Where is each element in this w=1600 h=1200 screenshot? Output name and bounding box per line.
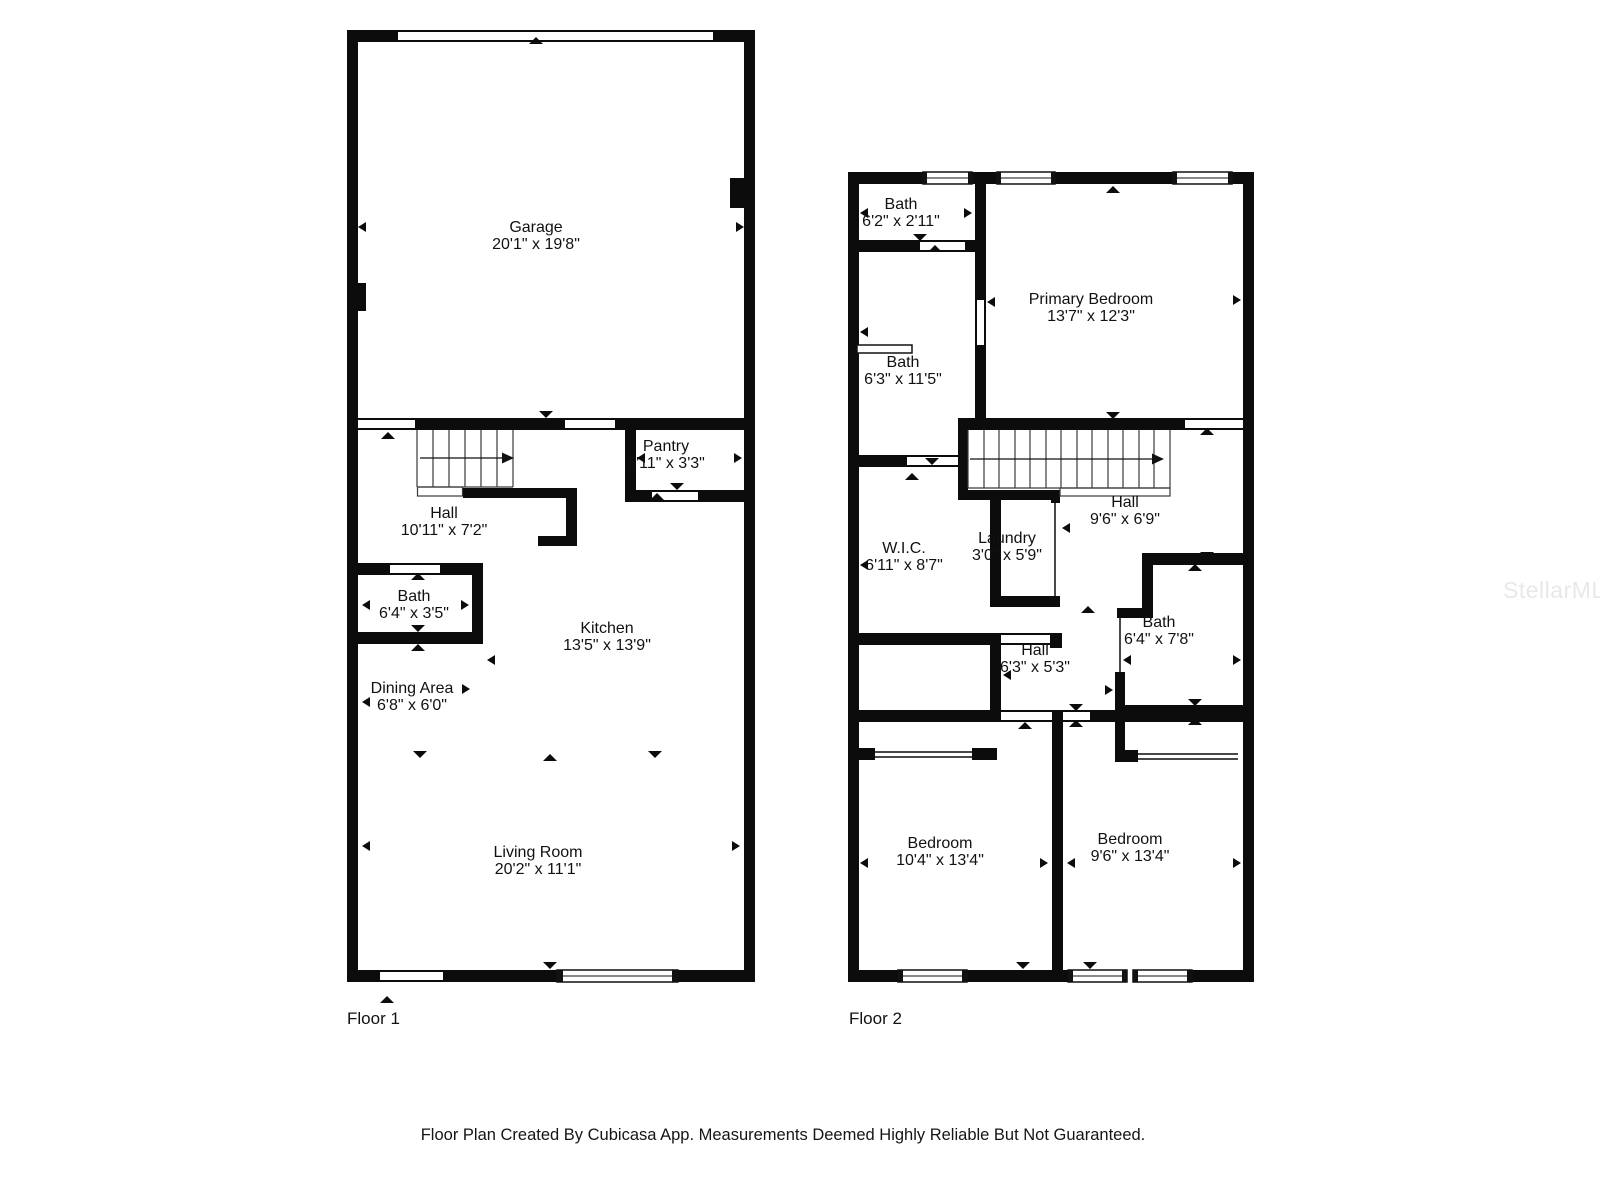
room-dims: 10'11" x 7'2" bbox=[401, 522, 488, 539]
room-label-pantry: Pantry 5'11" x 3'3" bbox=[627, 438, 705, 472]
room-dims: 6'2" x 2'11" bbox=[862, 213, 940, 230]
room-dims: 20'1" x 19'8" bbox=[492, 236, 580, 253]
room-label-dining-area: Dining Area 6'8" x 6'0" bbox=[371, 680, 454, 714]
room-name: Hall bbox=[1090, 494, 1160, 511]
room-label-laundry: Laundry 3'0" x 5'9" bbox=[972, 530, 1042, 564]
room-label-garage: Garage 20'1" x 19'8" bbox=[492, 219, 580, 253]
room-dims: 10'4" x 13'4" bbox=[896, 852, 984, 869]
room-label-bath-top-floor2: Bath 6'2" x 2'11" bbox=[862, 196, 940, 230]
room-dims: 3'0" x 5'9" bbox=[972, 547, 1042, 564]
room-dims: 6'8" x 6'0" bbox=[371, 697, 454, 714]
room-dims: 6'11" x 8'7" bbox=[865, 557, 943, 574]
room-dims: 6'3" x 11'5" bbox=[864, 371, 942, 388]
room-name: Bath bbox=[1124, 614, 1194, 631]
room-name: Garage bbox=[492, 219, 580, 236]
room-dims: 9'6" x 13'4" bbox=[1091, 848, 1170, 865]
floor1-window bbox=[557, 970, 678, 982]
room-label-kitchen: Kitchen 13'5" x 13'9" bbox=[563, 620, 651, 654]
room-dims: 5'11" x 3'3" bbox=[627, 455, 705, 472]
room-label-hall-lower-floor2: Hall 6'3" x 5'3" bbox=[1000, 642, 1070, 676]
footer-disclaimer: Floor Plan Created By Cubicasa App. Meas… bbox=[0, 1126, 1566, 1145]
room-name: Bath bbox=[864, 354, 942, 371]
room-name: Living Room bbox=[494, 844, 583, 861]
room-name: Dining Area bbox=[371, 680, 454, 697]
room-name: Hall bbox=[1000, 642, 1070, 659]
floor-plan-page: Garage 20'1" x 19'8" Pantry 5'11" x 3'3"… bbox=[0, 0, 1600, 1200]
room-dims: 9'6" x 6'9" bbox=[1090, 511, 1160, 528]
room-label-bath-floor1: Bath 6'4" x 3'5" bbox=[379, 588, 449, 622]
room-dims: 20'2" x 11'1" bbox=[494, 861, 583, 878]
stellar-mls-watermark: StellarMLS bbox=[1503, 577, 1600, 604]
room-label-bedroom-right: Bedroom 9'6" x 13'4" bbox=[1091, 831, 1170, 865]
room-name: Primary Bedroom bbox=[1029, 291, 1153, 308]
room-name: Bath bbox=[379, 588, 449, 605]
room-name: Hall bbox=[401, 505, 488, 522]
room-name: Bedroom bbox=[1091, 831, 1170, 848]
room-label-hall-floor1: Hall 10'11" x 7'2" bbox=[401, 505, 488, 539]
floor1-stairs bbox=[417, 430, 514, 496]
room-dims: 6'3" x 5'3" bbox=[1000, 659, 1070, 676]
room-label-hall-upper-floor2: Hall 9'6" x 6'9" bbox=[1090, 494, 1160, 528]
room-name: Kitchen bbox=[563, 620, 651, 637]
room-dims: 13'5" x 13'9" bbox=[563, 637, 651, 654]
room-label-wic: W.I.C. 6'11" x 8'7" bbox=[865, 540, 943, 574]
room-label-bath-right-floor2: Bath 6'4" x 7'8" bbox=[1124, 614, 1194, 648]
room-name: Laundry bbox=[972, 530, 1042, 547]
room-label-living-room: Living Room 20'2" x 11'1" bbox=[494, 844, 583, 878]
floor2-counter-shelf bbox=[857, 345, 912, 353]
room-name: Bath bbox=[862, 196, 940, 213]
room-label-bath-left-floor2: Bath 6'3" x 11'5" bbox=[864, 354, 942, 388]
room-dims: 13'7" x 12'3" bbox=[1029, 308, 1153, 325]
room-name: Pantry bbox=[627, 438, 705, 455]
room-name: Bedroom bbox=[896, 835, 984, 852]
floor2-caption: Floor 2 bbox=[849, 1009, 902, 1029]
room-label-primary-bedroom: Primary Bedroom 13'7" x 12'3" bbox=[1029, 291, 1153, 325]
floor-plan-canvas bbox=[0, 0, 1600, 1200]
room-label-bedroom-left: Bedroom 10'4" x 13'4" bbox=[896, 835, 984, 869]
room-dims: 6'4" x 7'8" bbox=[1124, 631, 1194, 648]
room-dims: 6'4" x 3'5" bbox=[379, 605, 449, 622]
floor2-stairs bbox=[968, 430, 1170, 496]
room-name: W.I.C. bbox=[865, 540, 943, 557]
floor1-caption: Floor 1 bbox=[347, 1009, 400, 1029]
